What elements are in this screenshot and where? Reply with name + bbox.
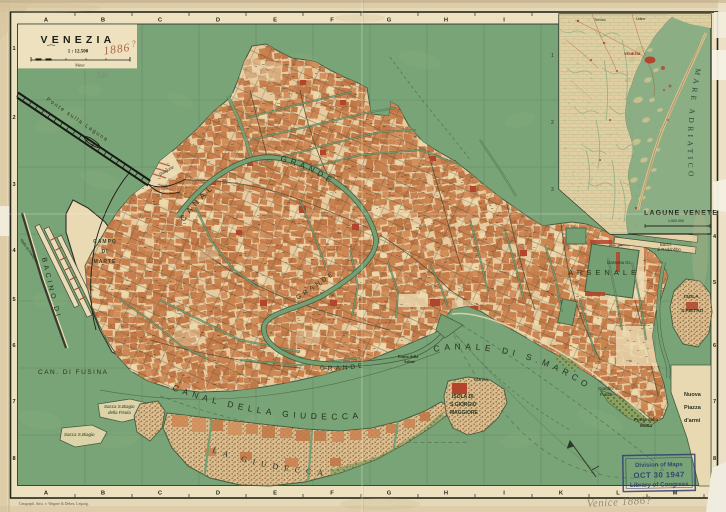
svg-text:H: H — [444, 491, 448, 497]
svg-text:Sacca S.Biagio: Sacca S.Biagio — [104, 404, 135, 409]
svg-text:Salute: Salute — [404, 359, 415, 364]
svg-text:DI: DI — [102, 249, 109, 255]
svg-text:Nuova: Nuova — [684, 392, 702, 398]
svg-text:F: F — [330, 491, 334, 497]
svg-text:Sacca S.Biagio: Sacca S.Biagio — [64, 432, 95, 437]
svg-text:Treviso: Treviso — [594, 18, 606, 22]
svg-text:OCT 30 1947: OCT 30 1947 — [633, 470, 684, 480]
svg-text:di Raddobbo: di Raddobbo — [657, 247, 681, 252]
svg-text:F: F — [330, 18, 334, 24]
svg-text:Darsena Gr.: Darsena Gr. — [607, 260, 631, 265]
svg-text:3: 3 — [12, 182, 15, 188]
svg-text:D: D — [216, 491, 220, 497]
svg-text:Giardini: Giardini — [598, 386, 614, 391]
svg-text:8: 8 — [713, 456, 716, 462]
svg-text:MAGGIORE: MAGGIORE — [450, 410, 478, 416]
svg-text:ISOLA: ISOLA — [684, 294, 699, 300]
svg-text:VENEZIA: VENEZIA — [624, 52, 641, 56]
svg-text:CAMPO: CAMPO — [93, 239, 117, 245]
svg-text:della Fisola: della Fisola — [108, 410, 131, 415]
svg-text:H: H — [444, 18, 448, 24]
svg-text:G: G — [387, 491, 392, 497]
svg-text:Division of Maps: Division of Maps — [635, 462, 683, 469]
svg-text:8: 8 — [12, 456, 15, 462]
svg-text:B: B — [101, 18, 105, 24]
svg-text:1: 1 — [551, 53, 554, 59]
svg-text:CAN. DI FUSINA: CAN. DI FUSINA — [38, 369, 108, 376]
svg-text:6: 6 — [713, 343, 716, 349]
svg-text:ARSENALE: ARSENALE — [568, 268, 640, 277]
svg-text:ISOLA DI: ISOLA DI — [452, 394, 474, 400]
svg-text:3: 3 — [551, 187, 554, 193]
svg-text:E: E — [273, 18, 277, 24]
svg-text:1 : 12.500: 1 : 12.500 — [68, 50, 89, 55]
svg-text:2: 2 — [551, 120, 554, 126]
svg-text:B: B — [101, 491, 105, 497]
svg-text:VENEZIA: VENEZIA — [41, 34, 116, 46]
svg-text:1:500.000: 1:500.000 — [668, 219, 684, 223]
svg-text:Udine: Udine — [636, 17, 645, 21]
svg-text:Piazza: Piazza — [684, 405, 702, 411]
svg-text:7: 7 — [12, 399, 15, 405]
svg-text:d'armi: d'armi — [684, 418, 701, 424]
svg-text:Punta della: Punta della — [634, 417, 659, 422]
svg-text:7: 7 — [713, 399, 716, 405]
svg-text:D: D — [216, 18, 220, 24]
svg-text:E: E — [273, 491, 277, 497]
svg-text:Meter: Meter — [75, 63, 85, 68]
svg-text:S.PIETRO: S.PIETRO — [681, 308, 704, 314]
svg-text:2: 2 — [12, 115, 15, 121]
svg-text:Pubbl.: Pubbl. — [600, 392, 613, 397]
svg-text:Library of Congress: Library of Congress — [630, 481, 689, 489]
svg-text:Marina: Marina — [474, 377, 488, 382]
svg-text:Motta: Motta — [640, 423, 652, 428]
svg-text:5B.: 5B. — [96, 69, 109, 80]
svg-text:1: 1 — [12, 46, 15, 52]
svg-text:MARTE: MARTE — [94, 259, 117, 265]
svg-text:5: 5 — [713, 280, 716, 286]
svg-text:LAGUNE VENETE: LAGUNE VENETE — [644, 208, 718, 217]
svg-text:S.GIORGIO: S.GIORGIO — [450, 402, 477, 408]
svg-text:G: G — [387, 18, 392, 24]
svg-text:6: 6 — [12, 343, 15, 349]
svg-text:5: 5 — [12, 297, 15, 303]
